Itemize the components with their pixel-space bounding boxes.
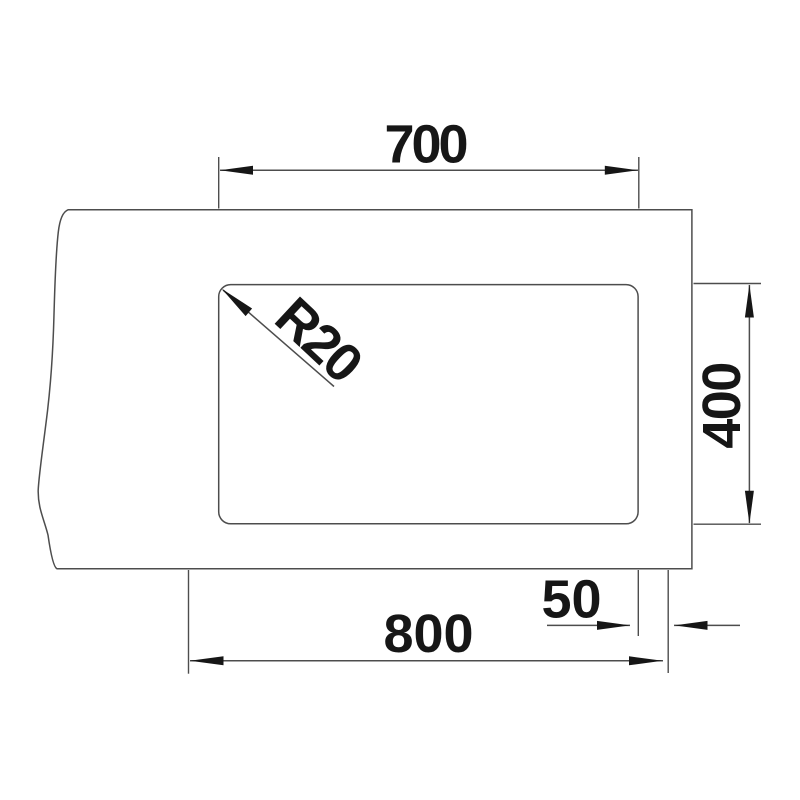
svg-text:R20: R20 [264,286,373,393]
svg-text:400: 400 [692,363,752,449]
svg-text:700: 700 [384,115,466,175]
svg-text:50: 50 [541,570,601,630]
svg-text:800: 800 [383,604,473,664]
